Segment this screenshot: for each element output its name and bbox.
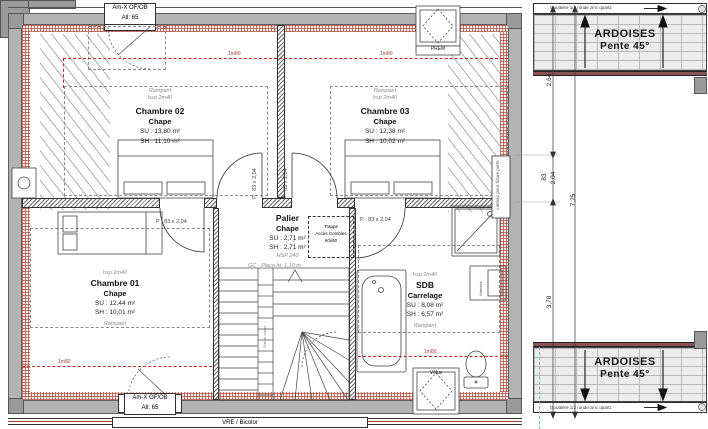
garde-corps-label: Garde-corps	[263, 296, 268, 348]
room-sdb: hsp 2m40 SDB Carrelage SU : 8,08 m² SH :…	[370, 272, 480, 330]
room-su: SU : 12,38 m²	[325, 128, 445, 136]
window-clearance-zone	[88, 26, 166, 70]
hsp-1m80-line-bottom-right	[358, 356, 508, 357]
rampant-label: Rampant	[100, 88, 220, 95]
pente-label: Pente 45°	[566, 41, 684, 53]
door-size-label: P : 83 x 2,04	[252, 153, 259, 199]
wall-corridor	[337, 198, 355, 208]
room-su: SU : 13,80 m²	[100, 128, 220, 136]
chimney-label: PREM	[416, 46, 460, 52]
door-size-label: P : 83 x 2,04	[360, 217, 391, 224]
window-label-line2: All: 65	[125, 404, 175, 414]
hsp-1m80-line-bottom-left	[22, 366, 212, 367]
room-chambre01: hsp 2m40 Chambre 01 Chape SU : 12,44 m² …	[60, 270, 170, 328]
door-size-label: P : 83 x 2,04	[156, 219, 187, 226]
vre-bar: VRE / Bicolor	[112, 417, 368, 428]
staircase	[219, 268, 349, 400]
axis-dashed-line	[539, 347, 540, 429]
wall-exterior-top	[8, 13, 522, 25]
wall-corridor	[22, 198, 160, 208]
wall-corner	[8, 398, 24, 414]
rampant-label: Rampant	[370, 323, 480, 330]
wall-exterior-left	[8, 13, 22, 414]
window-label-line1: Am-X OF/OB	[125, 394, 175, 404]
wall-plate-section	[694, 331, 707, 349]
ridge-band-top	[533, 71, 707, 76]
velux-label: Vélux	[418, 370, 454, 376]
room-name: Chambre 01	[60, 278, 170, 289]
linteau-label: Linteau pour future porte	[495, 156, 500, 214]
ardoises-label: ARDOISES	[566, 356, 684, 369]
hsp-1m80-label: 1m80	[380, 51, 393, 57]
rampant-label: Rampant	[60, 321, 170, 328]
attentes-label: Attentes	[479, 268, 484, 296]
hsp-label: hsp 2m40	[100, 95, 220, 102]
room-finish: Chape	[100, 117, 220, 127]
room-su: SU : 12,44 m²	[60, 300, 170, 308]
attic-hatch-line2: Accès Combles	[309, 231, 353, 238]
hsp-1m80-line-top	[63, 58, 508, 59]
hsp-1m80-label: 1m80	[58, 359, 71, 365]
wall-corridor-post	[262, 198, 292, 208]
door-size-label: P : 83 x 2,04	[283, 153, 290, 199]
hsp-1m80-label: 1m80	[228, 51, 241, 57]
wall-corner	[506, 398, 522, 414]
room-name: SDB	[370, 280, 480, 291]
room-finish: Chape	[325, 117, 445, 127]
room-name: Chambre 02	[100, 106, 220, 117]
rampant-label: Rampant	[325, 88, 445, 95]
room-sh: SH : 10,01 m²	[60, 309, 170, 317]
attic-hatch-line1: Trappe	[309, 224, 353, 231]
insulation-left	[22, 32, 30, 392]
floor-plan-sheet: Am-X OF/OB All: 65 Am-X OF/OB All: 65 VR…	[0, 0, 708, 429]
hsp-label: hsp 2m40	[325, 95, 445, 102]
gutter-label-top: Gouttière 1/2 ronde zinc quartz	[550, 5, 612, 10]
wall-corridor	[405, 198, 500, 208]
room-sh: SH : 6,57 m²	[370, 311, 480, 319]
hsp-label: hsp 2m40	[60, 270, 170, 277]
wall-corridor	[204, 198, 217, 208]
roofline-top	[8, 7, 522, 8]
dim-3-78: 3,78	[546, 282, 554, 322]
hsp-label: hsp 2m40	[370, 272, 480, 279]
window-label-line2: All: 65	[105, 14, 155, 24]
room-chambre02: Rampant hsp 2m40 Chambre 02 Chape SU : 1…	[100, 88, 220, 146]
insulation-bottom	[22, 392, 508, 400]
wall-corner	[506, 13, 522, 29]
dim-83: 83	[541, 156, 549, 198]
dim-2-04: 2,04	[550, 156, 558, 200]
wall-exterior-right	[508, 13, 522, 414]
room-chambre03: Rampant hsp 2m40 Chambre 03 Chape SU : 1…	[325, 88, 445, 146]
wall-stair-left	[213, 208, 219, 400]
ardoises-label: ARDOISES	[566, 28, 684, 41]
attic-hatch-line3: 60x60	[309, 238, 353, 245]
wall-exterior-bottom	[8, 400, 522, 414]
vre-label: VRE / Bicolor	[113, 418, 367, 428]
wall-plate-section	[694, 77, 707, 94]
pente-label: Pente 45°	[566, 369, 684, 381]
gc-placo-label: GC - Placo ht. 1,10 m	[248, 263, 301, 270]
room-finish: Carrelage	[370, 291, 480, 301]
window-label-line1: Am-X OF/OB	[105, 4, 155, 14]
room-name: Chambre 03	[325, 106, 445, 117]
room-su: SU : 8,08 m²	[370, 302, 480, 310]
hsp-1m80-label: 1m80	[424, 349, 437, 355]
gutter-label-bottom: Gouttière 1/2 ronde zinc quartz	[550, 405, 612, 410]
attic-hatch: Trappe Accès Combles 60x60	[308, 216, 354, 258]
dim-2-64: 2,64	[546, 60, 554, 100]
dim-7-25: 7,25	[570, 176, 578, 224]
room-sh: SH : 10,02 m²	[325, 138, 445, 146]
window-label-bottom: Am-X OF/OB All: 65	[124, 393, 176, 415]
room-finish: Chape	[60, 289, 170, 299]
room-sh: SH : 11,10 m²	[100, 138, 220, 146]
window-label-top: Am-X OF/OB All: 65	[104, 3, 156, 25]
hsp-1m80-line-left	[63, 58, 64, 88]
